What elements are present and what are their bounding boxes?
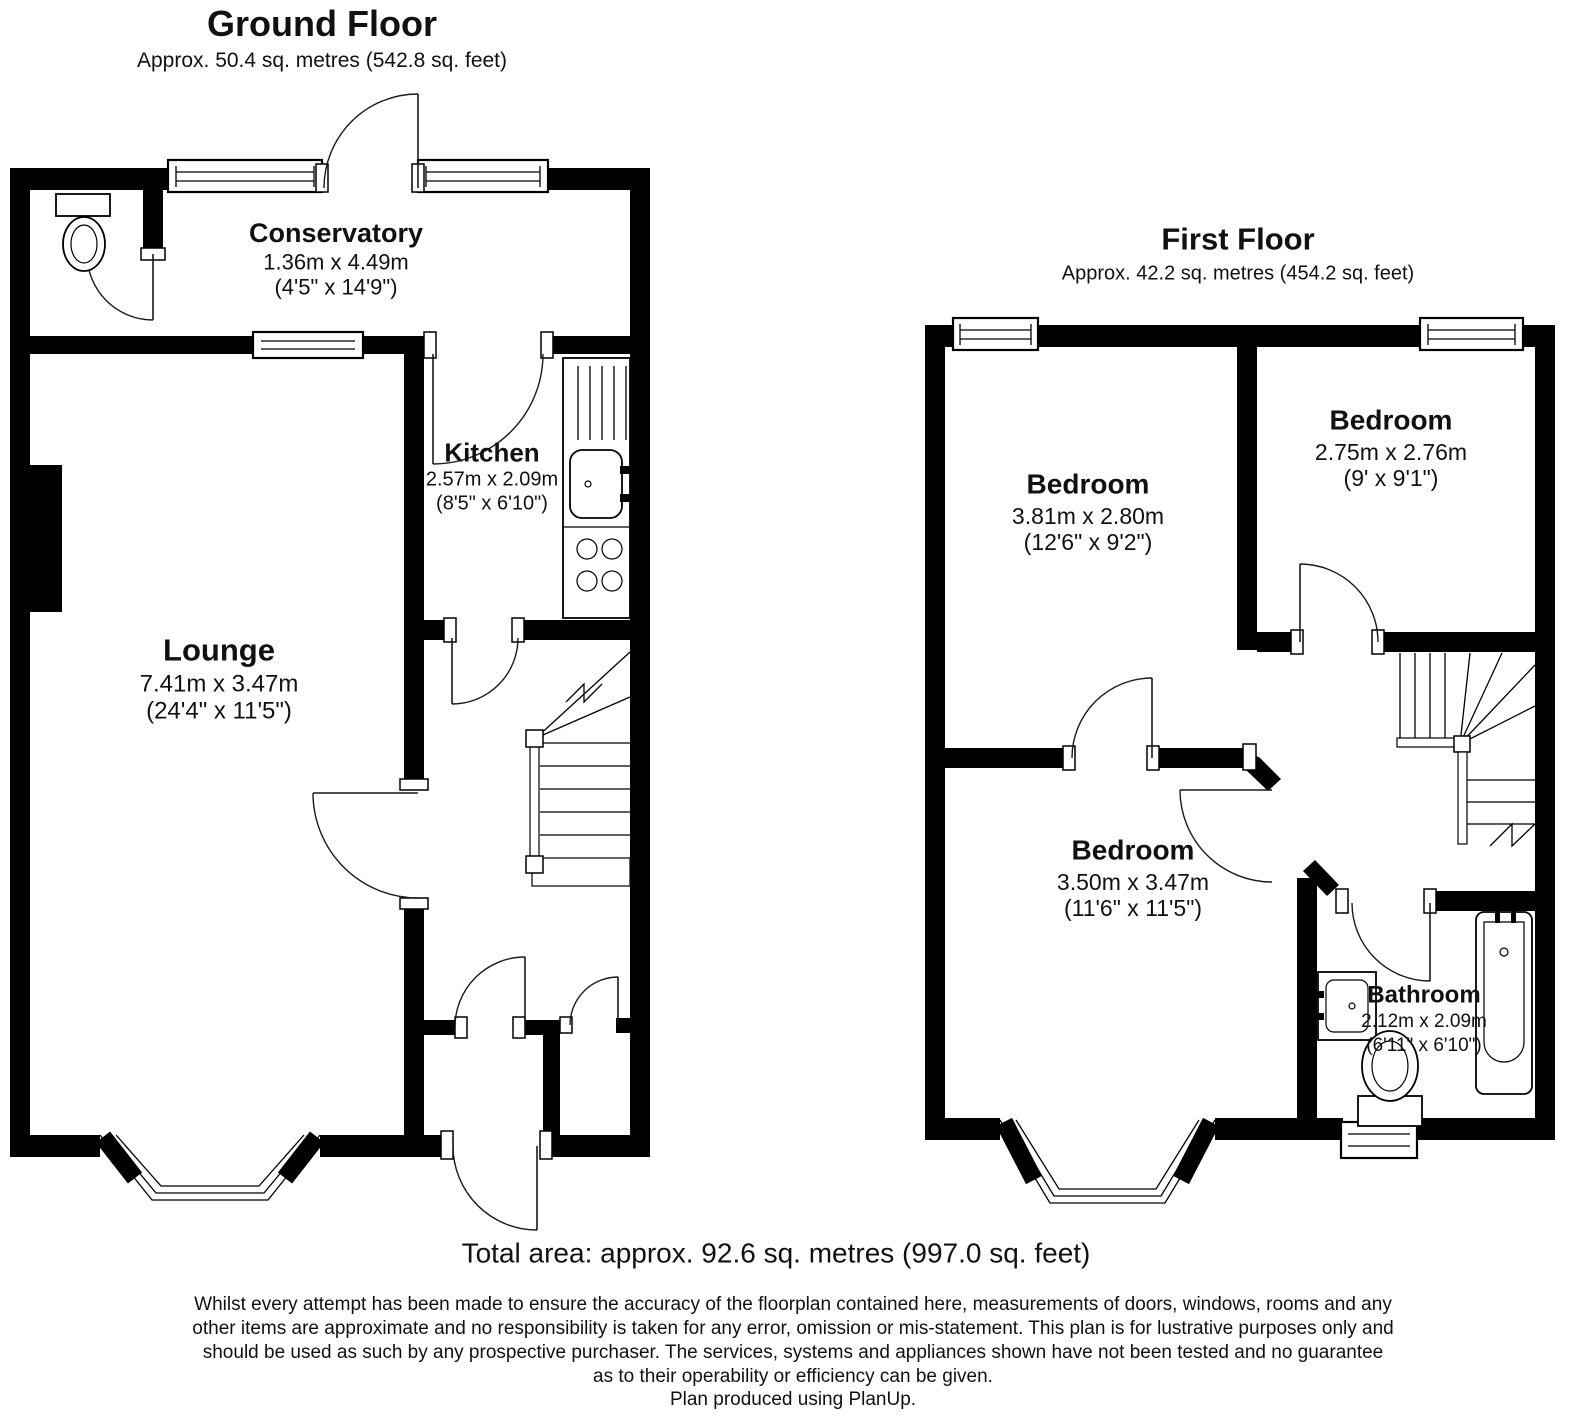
- ground-floor-title: Ground Floor: [207, 5, 437, 43]
- disclaimer-line-4: as to their operability or efficiency ca…: [593, 1367, 993, 1387]
- gf-hall-divider-wall: [404, 898, 424, 1135]
- ff-right-wall: [1535, 325, 1555, 1140]
- lounge-metric: 7.41m x 3.47m: [140, 671, 299, 696]
- bathroom-window: [1341, 1122, 1417, 1158]
- total-area: Total area: approx. 92.6 sq. metres (997…: [462, 1238, 1091, 1267]
- bath-icon: [1476, 904, 1532, 1094]
- lounge-rear-window: [253, 332, 363, 358]
- gf-kitchen-bottom-wall-a: [404, 620, 450, 640]
- lounge-name: Lounge: [163, 635, 275, 668]
- gf-bay-window: [100, 1133, 320, 1200]
- gf-conservatory-wall-c: [545, 336, 630, 354]
- bathroom-metric: 2.12m x 2.09m: [1361, 1012, 1487, 1032]
- bedroom1-metric: 3.81m x 2.80m: [1012, 504, 1164, 528]
- ff-bed2-bottom-wall-b: [1380, 632, 1535, 652]
- conservatory-metric: 1.36m x 4.49m: [263, 250, 409, 273]
- bedroom2-name: Bedroom: [1330, 405, 1453, 434]
- bathroom-door: [1336, 889, 1436, 981]
- credit-line: Plan produced using PlanUp.: [670, 1390, 916, 1410]
- ff-bedroom-divider: [1237, 347, 1257, 650]
- ff-bed1-bottom-wall-b: [1155, 748, 1245, 768]
- gf-right-wall: [630, 168, 650, 1157]
- kitchen-name: Kitchen: [444, 439, 539, 466]
- conservatory-name: Conservatory: [249, 219, 423, 247]
- gf-conservatory-wall-a: [30, 336, 253, 354]
- conservatory-imperial: (4'5" x 14'9"): [274, 275, 397, 298]
- ff-bay-window: [1000, 1118, 1215, 1203]
- first-floor-subtitle: Approx. 42.2 sq. metres (454.2 sq. feet): [1062, 264, 1414, 285]
- disclaimer-line-1: Whilst every attempt has been made to en…: [194, 1295, 1392, 1315]
- ff-bathroom-top-wall: [1430, 891, 1535, 911]
- bedroom1-door: [1063, 678, 1159, 770]
- kitchen-metric: 2.57m x 2.09m: [426, 470, 558, 491]
- bedroom2-metric: 2.75m x 2.76m: [1315, 440, 1467, 464]
- lounge-imperial: (24'4" x 11'5"): [146, 698, 292, 723]
- conservatory-window-right: [418, 160, 548, 192]
- disclaimer-line-2: other items are approximate and no respo…: [192, 1319, 1393, 1339]
- gf-porch-wall: [543, 1020, 560, 1135]
- ff-bed1-bottom-wall-a: [925, 748, 1075, 768]
- gf-kitchen-divider-wall: [404, 354, 424, 790]
- gf-vestibule-post: [525, 1020, 545, 1035]
- conservatory-window-left: [168, 160, 322, 192]
- kitchen-imperial: (8'5" x 6'10"): [436, 494, 548, 515]
- gf-kitchen-bottom-wall-b: [518, 620, 630, 640]
- bedroom2-window: [1420, 318, 1523, 350]
- cupboard-door: [560, 977, 618, 1033]
- gf-left-wall: [10, 168, 30, 1157]
- toilet-icon: [56, 194, 110, 271]
- bedroom3-name: Bedroom: [1072, 835, 1195, 864]
- disclaimer-line-3: should be used as such by any prospectiv…: [203, 1343, 1384, 1363]
- gf-stairs: [526, 652, 630, 886]
- bedroom3-metric: 3.50m x 3.47m: [1057, 870, 1209, 894]
- bathroom-imperial: (6'11" x 6'10"): [1366, 1036, 1481, 1056]
- bedroom1-window: [953, 318, 1038, 350]
- floorplan-page: { "ground_floor": { "title": "Ground Flo…: [0, 0, 1584, 1421]
- bedroom1-imperial: (12'6" x 9'2"): [1024, 530, 1153, 554]
- bedroom1-name: Bedroom: [1027, 469, 1150, 498]
- gf-chimney-breast: [30, 465, 62, 612]
- bedroom2-door: [1291, 564, 1384, 654]
- bathroom-name: Bathroom: [1367, 982, 1480, 1007]
- gf-vestibule-stub: [424, 1020, 455, 1035]
- bedroom2-imperial: (9' x 9'1"): [1344, 466, 1439, 490]
- vestibule-door: [455, 957, 525, 1038]
- kitchen-hall-door: [444, 618, 524, 704]
- bedroom3-imperial: (11'6" x 11'5"): [1064, 896, 1202, 920]
- gf-conservatory-wall-b: [363, 336, 430, 354]
- ff-stairs: [1397, 653, 1535, 846]
- first-floor-title: First Floor: [1161, 224, 1314, 257]
- ff-left-wall: [925, 325, 945, 1140]
- ground-floor-subtitle: Approx. 50.4 sq. metres (542.8 sq. feet): [137, 50, 507, 72]
- gf-wc-wall: [143, 190, 163, 248]
- lounge-door: [313, 779, 428, 909]
